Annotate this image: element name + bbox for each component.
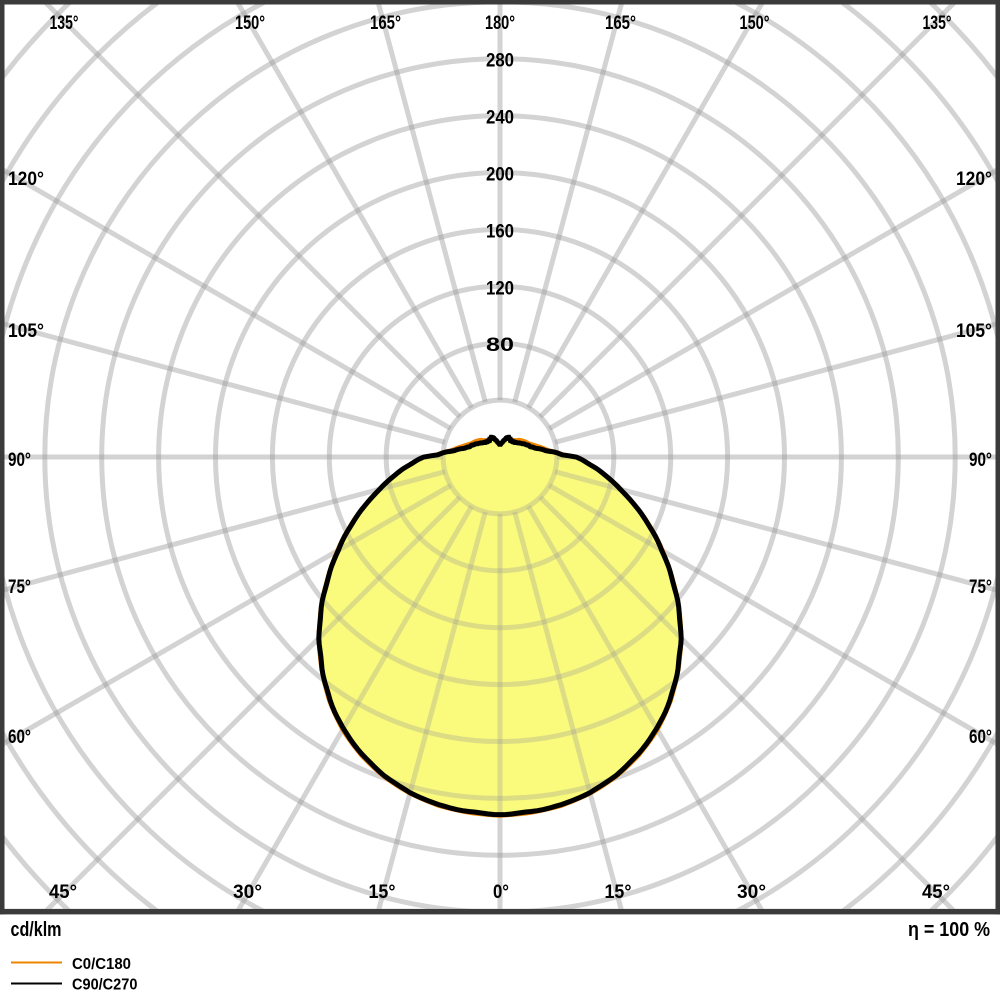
svg-text:165°: 165° [605, 13, 636, 34]
svg-text:120: 120 [486, 277, 514, 299]
svg-text:105°: 105° [956, 321, 992, 342]
svg-text:90°: 90° [8, 450, 31, 471]
svg-text:60°: 60° [969, 727, 992, 748]
svg-text:160: 160 [486, 220, 514, 242]
svg-text:105°: 105° [8, 321, 44, 342]
svg-text:120°: 120° [8, 169, 44, 190]
svg-text:280: 280 [486, 50, 514, 72]
svg-text:30°: 30° [233, 882, 262, 903]
svg-text:η = 100 %: η = 100 % [908, 919, 990, 941]
svg-text:45°: 45° [49, 882, 77, 903]
svg-text:30°: 30° [737, 882, 766, 903]
svg-text:80: 80 [486, 334, 514, 356]
svg-text:cd/klm: cd/klm [11, 919, 62, 941]
svg-text:120°: 120° [956, 169, 992, 190]
svg-text:15°: 15° [369, 882, 396, 903]
svg-text:15°: 15° [605, 882, 632, 903]
svg-text:180°: 180° [485, 13, 515, 34]
svg-text:240: 240 [486, 107, 514, 129]
svg-text:165°: 165° [370, 13, 401, 34]
svg-text:45°: 45° [922, 882, 950, 903]
svg-text:135°: 135° [50, 13, 79, 34]
svg-text:150°: 150° [740, 13, 770, 34]
svg-text:200: 200 [486, 164, 514, 186]
svg-text:0°: 0° [493, 882, 509, 903]
svg-text:150°: 150° [235, 13, 265, 34]
svg-text:75°: 75° [8, 577, 31, 598]
svg-text:135°: 135° [923, 13, 952, 34]
svg-text:C0/C180: C0/C180 [72, 956, 131, 973]
svg-text:75°: 75° [969, 577, 992, 598]
svg-text:60°: 60° [8, 727, 31, 748]
svg-text:90°: 90° [969, 450, 992, 471]
svg-text:C90/C270: C90/C270 [72, 977, 137, 994]
